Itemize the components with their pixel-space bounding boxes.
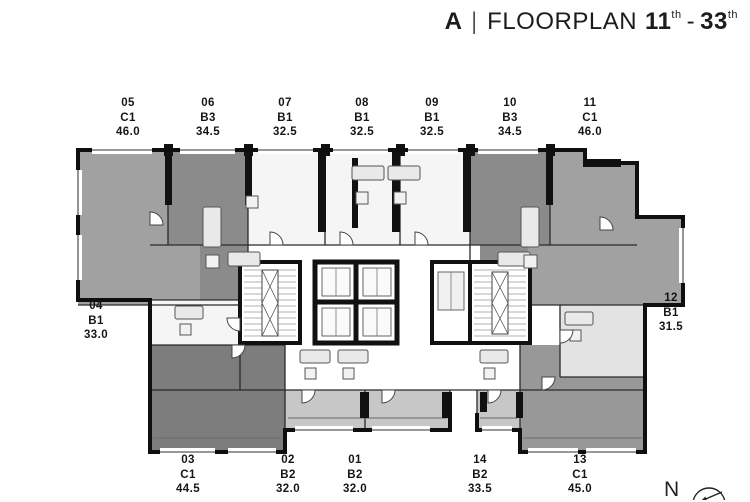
unit-label-02: 02 B2 32.0 (276, 453, 300, 497)
unit-area: 32.5 (420, 125, 444, 140)
floor-range-end: 33 (700, 9, 728, 35)
unit-area: 44.5 (176, 482, 200, 497)
unit-area: 46.0 (116, 125, 140, 140)
unit-type: C1 (176, 468, 200, 483)
compass-icon (693, 488, 725, 500)
unit-number: 13 (568, 453, 592, 468)
unit-number: 04 (84, 299, 108, 314)
unit-area: 46.0 (578, 125, 602, 140)
floor-range-end-suffix: th (728, 10, 738, 21)
unit-type: B1 (273, 111, 297, 126)
unit-label-12: 12 B1 31.5 (659, 291, 683, 335)
floorplan-canvas (0, 0, 750, 500)
unit-label-01: 01 B2 32.0 (343, 453, 367, 497)
unit-type: B3 (498, 111, 522, 126)
compass-north-label: N (664, 478, 679, 502)
building-letter: A (445, 9, 463, 35)
unit-type: B2 (468, 468, 492, 483)
unit-number: 11 (578, 96, 602, 111)
unit-number: 14 (468, 453, 492, 468)
unit-number: 03 (176, 453, 200, 468)
page-title: A | FLOORPLAN 11 th - 33 th (445, 9, 738, 35)
unit-number: 08 (350, 96, 374, 111)
unit-label-08: 08 B1 32.5 (350, 96, 374, 140)
floorplan-page: A | FLOORPLAN 11 th - 33 th 05 C1 46.0 0… (0, 0, 750, 500)
unit-label-07: 07 B1 32.5 (273, 96, 297, 140)
unit-number: 05 (116, 96, 140, 111)
floor-range-start: 11 (645, 9, 671, 35)
unit-number: 12 (659, 291, 683, 306)
unit-label-11: 11 C1 46.0 (578, 96, 602, 140)
unit-label-13: 13 C1 45.0 (568, 453, 592, 497)
title-separator: | (465, 9, 485, 35)
unit-area: 31.5 (659, 320, 683, 335)
unit-number: 09 (420, 96, 444, 111)
unit-type: B3 (196, 111, 220, 126)
unit-type: B1 (659, 306, 683, 321)
unit-area: 33.0 (84, 328, 108, 343)
unit-label-10: 10 B3 34.5 (498, 96, 522, 140)
unit-label-06: 06 B3 34.5 (196, 96, 220, 140)
unit-area: 32.5 (273, 125, 297, 140)
unit-label-03: 03 C1 44.5 (176, 453, 200, 497)
unit-area: 34.5 (498, 125, 522, 140)
unit-number: 01 (343, 453, 367, 468)
unit-label-05: 05 C1 46.0 (116, 96, 140, 140)
unit-label-14: 14 B2 33.5 (468, 453, 492, 497)
unit-area: 32.5 (350, 125, 374, 140)
unit-area: 34.5 (196, 125, 220, 140)
unit-label-09: 09 B1 32.5 (420, 96, 444, 140)
unit-number: 06 (196, 96, 220, 111)
unit-type: B2 (276, 468, 300, 483)
unit-type: B2 (343, 468, 367, 483)
unit-area: 33.5 (468, 482, 492, 497)
unit-type: B1 (420, 111, 444, 126)
floor-range-start-suffix: th (671, 10, 681, 21)
title-label: FLOORPLAN (487, 9, 645, 35)
stair-core-left (240, 262, 300, 343)
elevator-bank (315, 262, 397, 343)
unit-type: B1 (84, 314, 108, 329)
unit-number: 07 (273, 96, 297, 111)
unit-type: B1 (350, 111, 374, 126)
unit-area: 45.0 (568, 482, 592, 497)
unit-number: 02 (276, 453, 300, 468)
unit-type: C1 (116, 111, 140, 126)
unit-area: 32.0 (276, 482, 300, 497)
stair-core-right (432, 262, 530, 343)
unit-type: C1 (568, 468, 592, 483)
floor-range-dash: - (682, 9, 701, 35)
unit-label-04: 04 B1 33.0 (84, 299, 108, 343)
unit-area: 32.0 (343, 482, 367, 497)
unit-type: C1 (578, 111, 602, 126)
unit-number: 10 (498, 96, 522, 111)
